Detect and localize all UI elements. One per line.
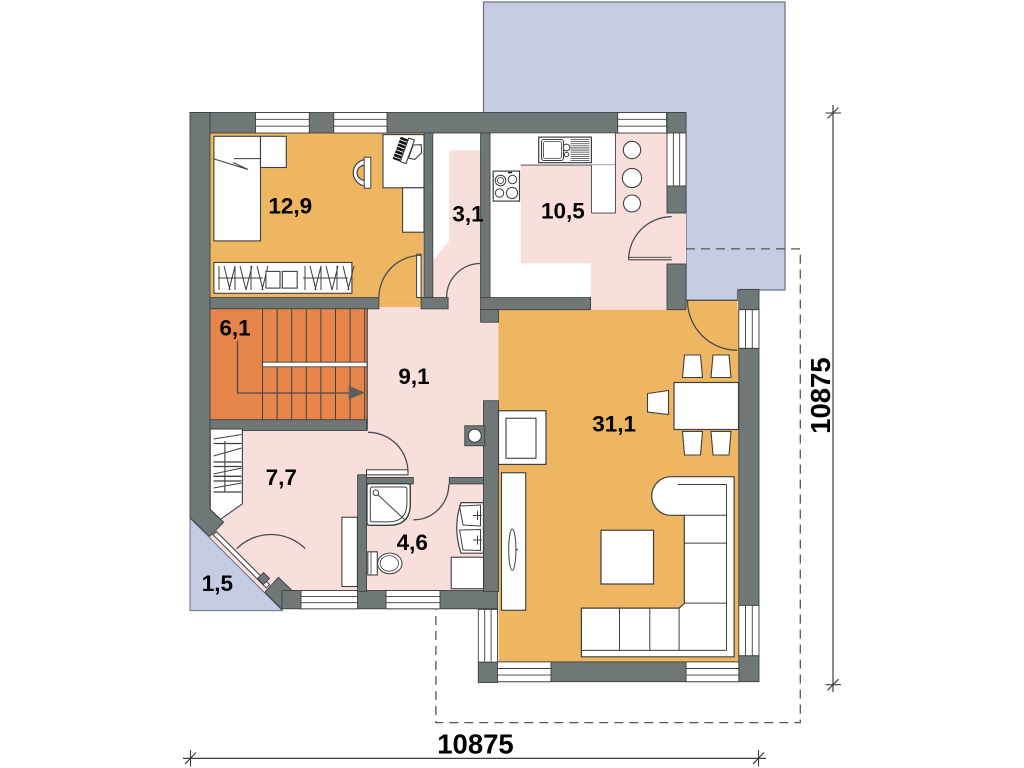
svg-text:6,1: 6,1 [219,315,250,340]
svg-text:12,9: 12,9 [268,194,312,219]
svg-text:10,5: 10,5 [541,198,585,223]
svg-text:10875: 10875 [805,357,836,433]
svg-text:3,1: 3,1 [452,201,483,226]
svg-text:9,1: 9,1 [398,364,429,389]
svg-text:4,6: 4,6 [397,530,428,555]
svg-text:10875: 10875 [437,729,513,760]
svg-text:7,7: 7,7 [266,465,297,490]
svg-text:31,1: 31,1 [592,412,636,437]
svg-text:1,5: 1,5 [202,571,233,596]
